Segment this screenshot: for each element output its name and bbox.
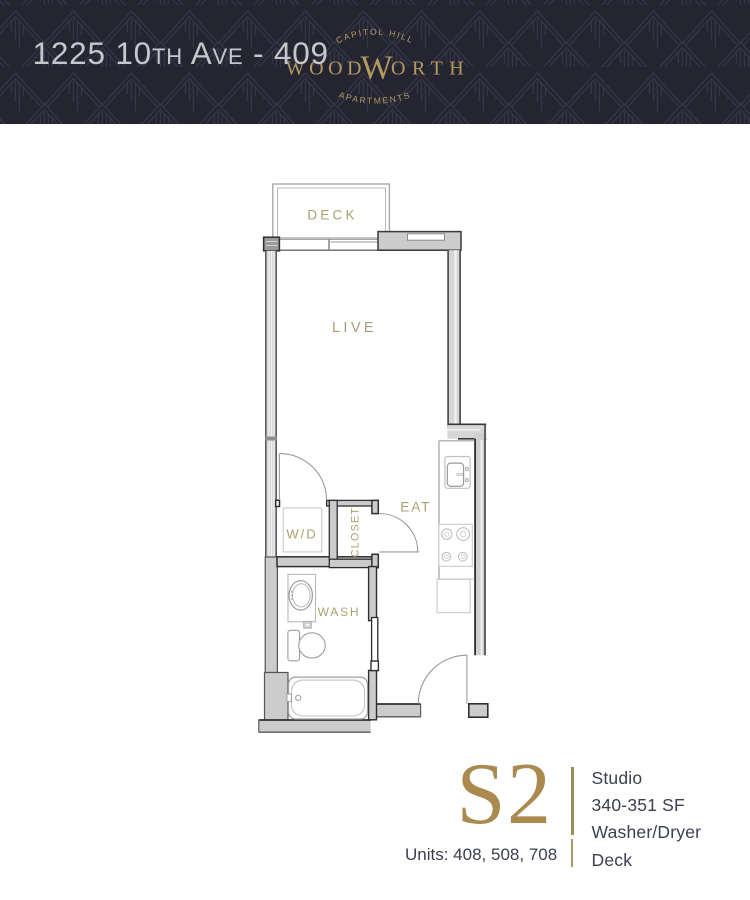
- svg-text:ORTH: ORTH: [391, 58, 470, 80]
- svg-text:WASH: WASH: [318, 605, 361, 619]
- svg-text:DECK: DECK: [307, 208, 357, 223]
- svg-text:W/D: W/D: [286, 527, 317, 542]
- svg-text:W: W: [360, 50, 393, 87]
- svg-text:LIVE: LIVE: [332, 320, 377, 336]
- svg-text:CLOSET: CLOSET: [350, 507, 362, 557]
- svg-text:EAT: EAT: [400, 500, 431, 515]
